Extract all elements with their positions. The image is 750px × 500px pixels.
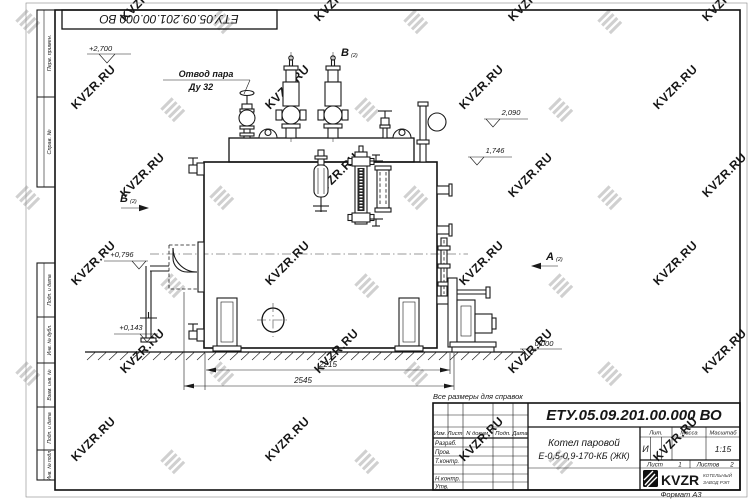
watermark-icon — [160, 97, 185, 122]
watermark-text: KVZR.RU — [117, 326, 167, 376]
watermark-text: KVZR.RU — [650, 238, 700, 288]
scale-header: Масштаб — [709, 431, 737, 437]
watermark-icon — [597, 361, 622, 386]
watermark-text: KVZR.RU — [262, 414, 312, 464]
view-label-v: В (2) — [341, 47, 358, 59]
watermark-text: KVZR.RU — [311, 0, 361, 24]
water-column — [313, 150, 329, 212]
row-prov: Пров. — [435, 450, 451, 456]
support-skid-left — [213, 298, 241, 351]
watermark-text: KVZR.RU — [699, 150, 749, 200]
row-utv: Утв. — [434, 485, 449, 491]
svg-text:(2): (2) — [130, 199, 137, 205]
watermark-icon — [15, 185, 40, 210]
feed-pump — [448, 278, 496, 352]
side-label-podp-data-2: Подп. и дата — [47, 412, 53, 444]
watermark-text: KVZR.RU — [505, 0, 555, 24]
left-drain-valve — [188, 324, 204, 341]
boiler-drawing — [85, 52, 523, 360]
view-label-b: Б (2) — [120, 193, 149, 211]
watermark-icon — [160, 449, 185, 474]
row-tkontr: Т.контр. — [435, 459, 459, 465]
svg-text:0,000: 0,000 — [535, 339, 555, 348]
svg-text:+0,796: +0,796 — [110, 250, 134, 259]
lit-header: Лит. — [648, 431, 663, 437]
watermark-icon — [209, 185, 234, 210]
dim-2545: 2545 — [293, 376, 312, 385]
watermark-icon — [160, 273, 185, 298]
drawing-canvas: KVZR.RUKVZR.RUKVZR.RUKVZR.RUKVZR.RUKVZR.… — [0, 0, 750, 500]
watermark-text: KVZR.RU — [262, 238, 312, 288]
kvzr-logo-sub2: ЗАВОД РЭП — [703, 480, 730, 485]
side-label-inv-podl: Инв. № подл. — [47, 449, 53, 480]
svg-text:+2,700: +2,700 — [89, 44, 113, 53]
product-name-line2: Е-0,5-0,9-170-КБ (ЖК) — [538, 451, 629, 461]
side-label-sprav: Справ. № — [47, 129, 53, 154]
watermark-icon — [354, 449, 379, 474]
sheets-value: 2 — [729, 462, 734, 469]
svg-text:А: А — [545, 251, 554, 263]
watermark-text: KVZR.RU — [456, 414, 506, 464]
side-columns: Перв. примен. Справ. № Подп. и дата Инв.… — [37, 10, 55, 481]
watermark-text: KVZR.RU — [68, 414, 118, 464]
format-label: Формат А3 — [660, 490, 702, 499]
col-date: Дата — [511, 431, 528, 437]
watermark-icon — [354, 97, 379, 122]
svg-text:1,746: 1,746 — [486, 146, 506, 155]
corner-stamp: ЕТУ.05.09.201.00.000 ВО — [62, 10, 277, 29]
elevation-1746: 1,746 — [468, 146, 512, 165]
steam-outlet-valve — [239, 91, 255, 139]
level-gauge-column — [348, 146, 374, 224]
reference-note: Все размеры для справок — [433, 392, 523, 401]
watermark-icon — [209, 361, 234, 386]
title-doc-number: ЕТУ.05.09.201.00.000 ВО — [546, 407, 722, 424]
watermark-text: KVZR.RU — [456, 62, 506, 112]
watermark-icon — [403, 9, 428, 34]
elevation-2700: +2,700 — [87, 44, 131, 63]
watermark-text: KVZR.RU — [505, 326, 555, 376]
svg-text:Б: Б — [120, 193, 128, 205]
scale-value: 1:15 — [715, 444, 732, 454]
mass-header: Масса — [680, 431, 698, 437]
dim-2215: 2215 — [318, 360, 337, 369]
drawing-sheet: KVZR.RUKVZR.RUKVZR.RUKVZR.RUKVZR.RUKVZR.… — [0, 0, 750, 500]
col-izm: Изм. — [434, 431, 446, 437]
watermark-text: KVZR.RU — [650, 62, 700, 112]
elevation-0796: +0,796 — [104, 250, 148, 269]
manhole — [257, 303, 289, 337]
row-razrab: Разраб. — [435, 441, 457, 447]
burner-unit — [169, 242, 204, 292]
corner-stamp-number: ЕТУ.05.09.201.00.000 ВО — [99, 12, 238, 26]
watermark-text: KVZR.RU — [699, 0, 749, 24]
watermark-icon — [354, 273, 379, 298]
kvzr-logo-sub1: КОТЕЛЬНЫЙ — [703, 471, 733, 478]
kvzr-logo-text: KVZR — [661, 472, 699, 488]
watermark-icon — [597, 9, 622, 34]
col-doc: N докум. — [466, 431, 489, 437]
watermark-icon — [403, 361, 428, 386]
watermark-icon — [548, 273, 573, 298]
watermark-text: KVZR.RU — [505, 150, 555, 200]
svg-text:Ду 32: Ду 32 — [188, 82, 213, 92]
view-label-a: А (2) — [531, 251, 563, 269]
watermark-icon — [548, 97, 573, 122]
svg-text:(2): (2) — [351, 53, 358, 59]
side-label-podp-data-1: Подп. и дата — [47, 274, 53, 306]
vent-valve — [378, 111, 392, 138]
lifting-lug-left — [259, 129, 277, 138]
watermark-text: KVZR.RU — [68, 62, 118, 112]
col-list: Лист — [447, 431, 463, 437]
watermark-text: KVZR.RU — [456, 238, 506, 288]
row-nkontr: Н.контр. — [435, 477, 460, 483]
sheet-label: Лист — [646, 462, 663, 469]
siphon-pipe — [417, 102, 446, 162]
watermark-icon — [597, 185, 622, 210]
svg-text:(2): (2) — [556, 257, 563, 263]
watermark-text: KVZR.RU — [699, 326, 749, 376]
steam-outlet-callout: Отвод пара Ду 32 — [163, 69, 250, 94]
ground-line — [85, 352, 523, 360]
svg-text:+0,143: +0,143 — [119, 323, 143, 332]
svg-text:2,090: 2,090 — [501, 108, 522, 117]
kvzr-logo: KVZR КОТЕЛЬНЫЙ ЗАВОД РЭП — [643, 470, 733, 488]
side-label-vzam-inv: Взам. инв. № — [47, 369, 53, 401]
svg-text:Отвод пара: Отвод пара — [179, 69, 234, 79]
lit-value: И — [642, 444, 649, 454]
col-sign: Подп. — [495, 431, 510, 437]
watermark-text: KVZR.RU — [68, 238, 118, 288]
left-top-valve — [188, 158, 204, 175]
product-name-line1: Котел паровой — [548, 438, 620, 449]
sheet-value: 1 — [678, 462, 681, 469]
svg-text:В: В — [341, 47, 349, 59]
side-label-perv-primen: Перв. примен. — [47, 35, 53, 72]
sheets-label: Листов — [696, 462, 720, 469]
support-skid-right — [395, 298, 423, 351]
side-label-inv-dubl: Инв. № дубл. — [47, 325, 53, 356]
lifting-lug-right — [393, 129, 411, 138]
elevation-2090: 2,090 — [484, 108, 528, 127]
watermark-icon — [403, 185, 428, 210]
safety-valve-2 — [318, 56, 348, 138]
